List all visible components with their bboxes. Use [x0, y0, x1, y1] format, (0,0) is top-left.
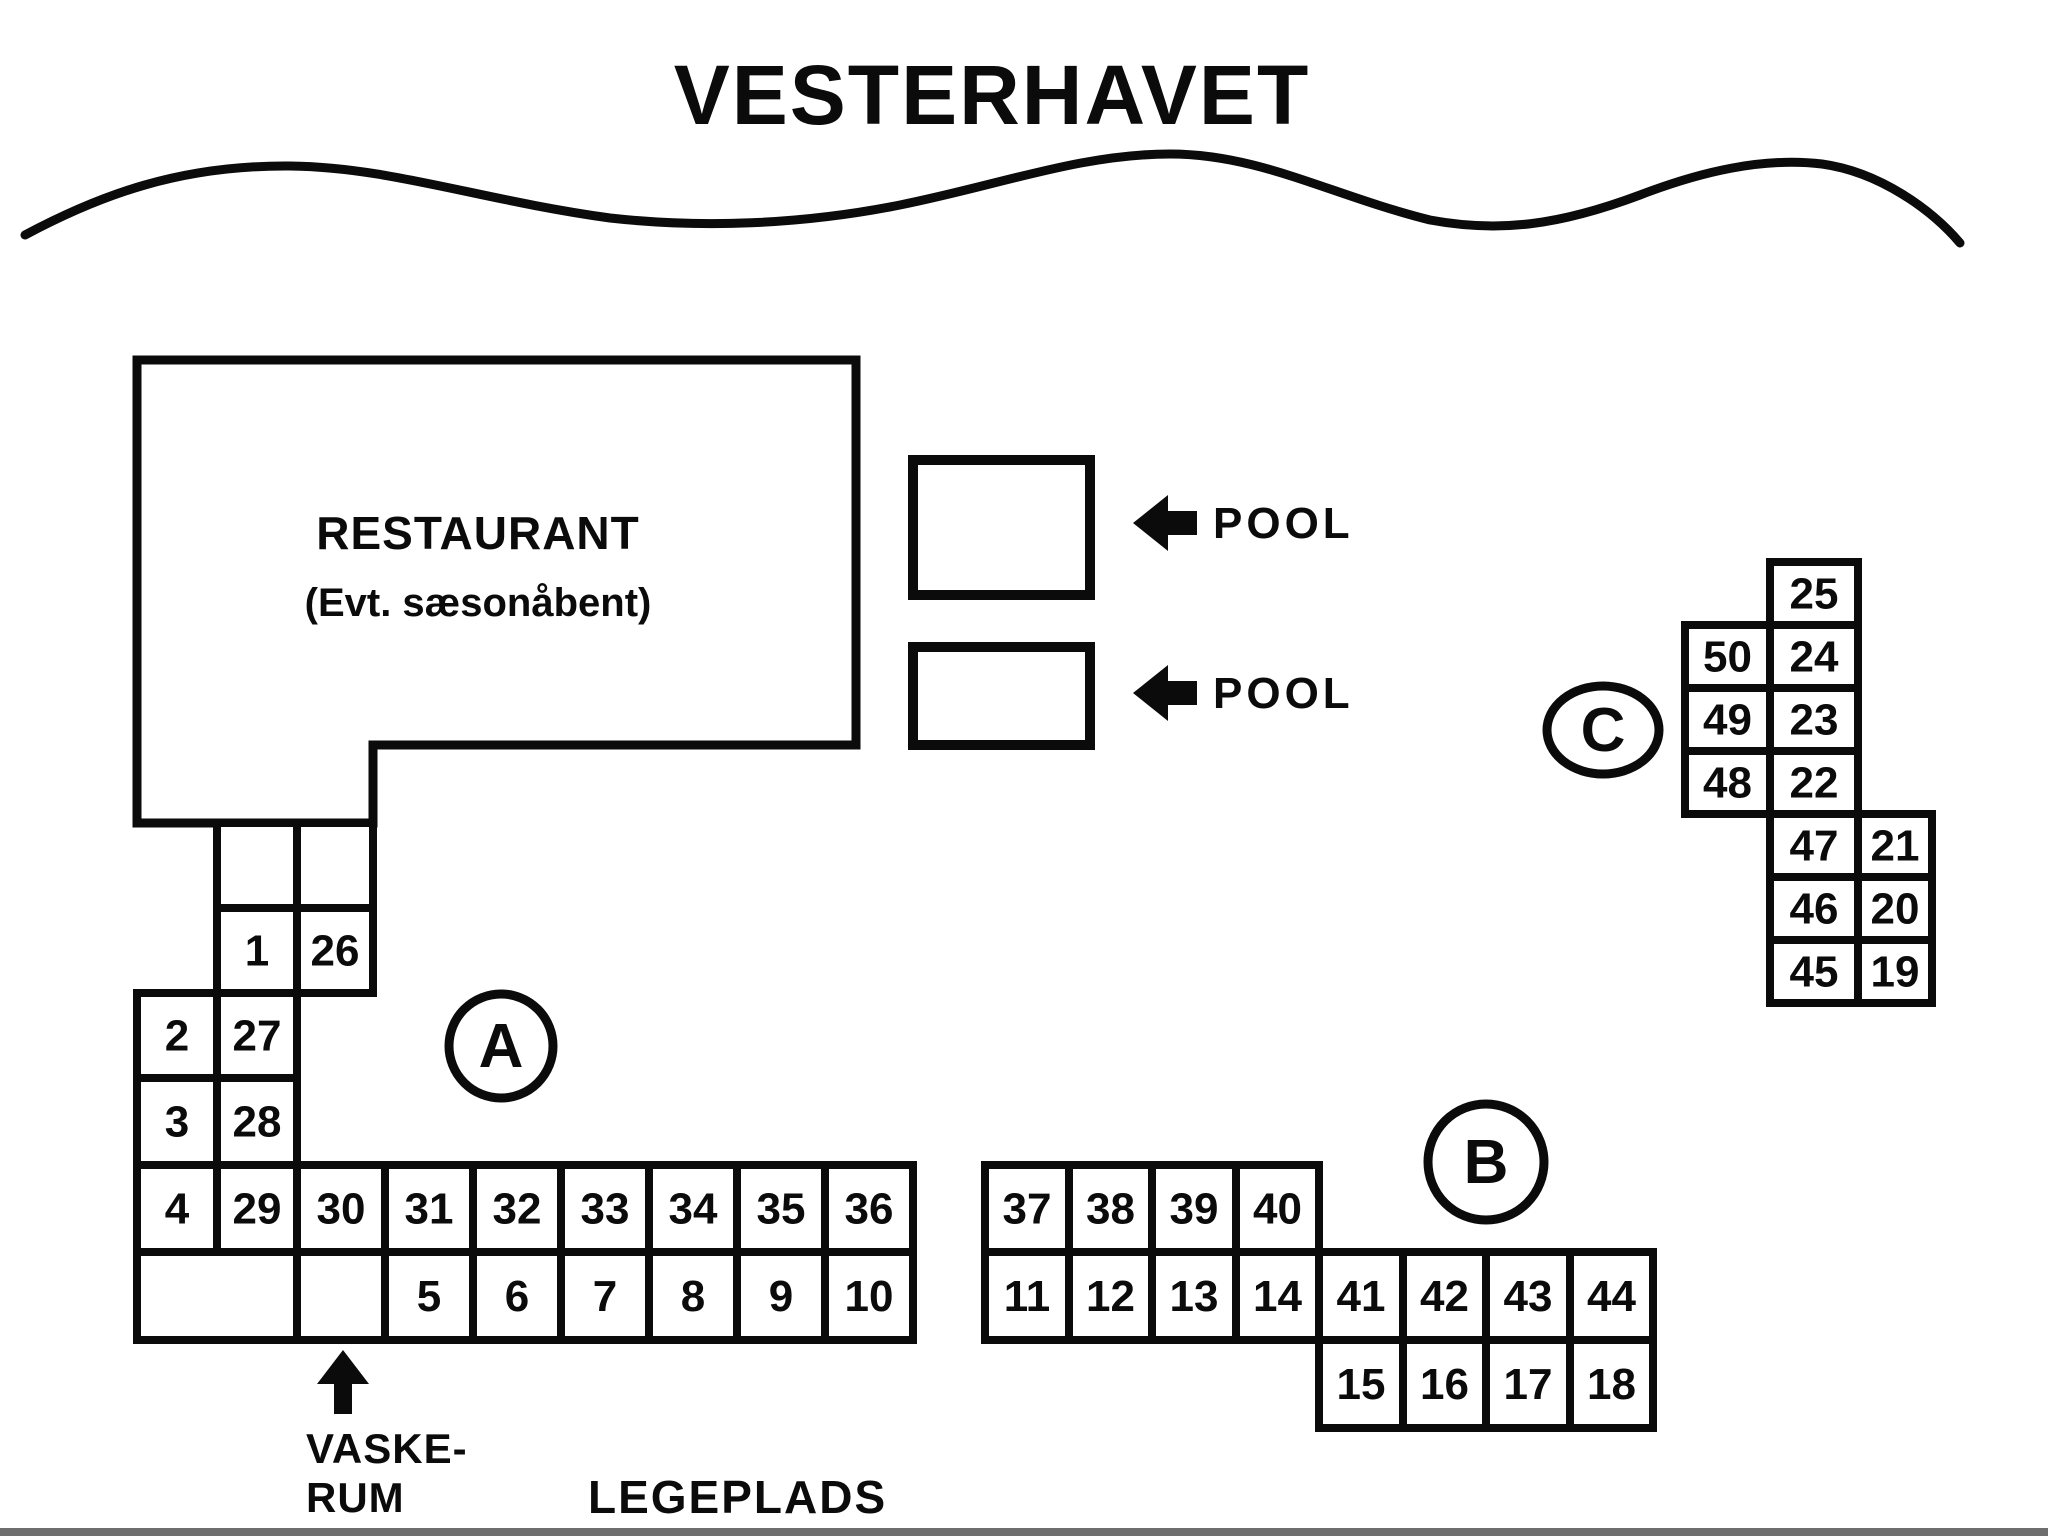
plot-cell-1: 1 [217, 908, 297, 993]
laundry-room-pointer: VASKE- RUM [306, 1350, 468, 1521]
plot-number: 9 [769, 1272, 793, 1321]
plot-number: 25 [1790, 570, 1839, 619]
plot-number: 50 [1703, 633, 1752, 682]
plot-cell-31: 31 [385, 1165, 473, 1252]
plot-cell-27: 27 [217, 993, 297, 1078]
plot-cell-41: 41 [1319, 1252, 1403, 1340]
restaurant-label: RESTAURANT [316, 507, 639, 559]
plot-cell-5: 5 [385, 1252, 473, 1340]
plot-number: 15 [1337, 1360, 1386, 1409]
plot-number: 41 [1337, 1272, 1386, 1321]
plot-cell-43: 43 [1486, 1252, 1570, 1340]
plot-number: 20 [1871, 885, 1920, 934]
section-C: 25502449234822472146204519C [1547, 562, 1932, 1003]
plot-number: 21 [1871, 822, 1920, 871]
plot-cell-47: 47 [1770, 814, 1858, 877]
plot-number: 36 [845, 1185, 894, 1234]
plot-number: 28 [233, 1098, 282, 1147]
plot-cell-46: 46 [1770, 877, 1858, 940]
plot-number: 12 [1086, 1272, 1135, 1321]
plot-number: 42 [1420, 1272, 1469, 1321]
plot-cell-36: 36 [825, 1165, 913, 1252]
section-A: 126227328429303132333435365678910A [137, 823, 913, 1340]
plot-cell-2: 2 [137, 993, 217, 1078]
plot-number: 47 [1790, 822, 1839, 871]
plot-cell-37: 37 [985, 1165, 1069, 1252]
laundry-label-line2: RUM [306, 1474, 405, 1521]
laundry-arrow-up-icon [317, 1350, 369, 1414]
plot-cell-48: 48 [1685, 751, 1770, 814]
plot-cell-28: 28 [217, 1078, 297, 1165]
site-map-page: VESTERHAVET RESTAURANT (Evt. sæsonåbent)… [0, 0, 2048, 1536]
plot-number: 29 [233, 1185, 282, 1234]
plot-number: 17 [1504, 1360, 1553, 1409]
plot-cell-12: 12 [1069, 1252, 1152, 1340]
plot-number: 37 [1003, 1185, 1052, 1234]
pool-1: POOL [913, 460, 1354, 595]
plot-cell-30: 30 [297, 1165, 385, 1252]
plot-number: 13 [1170, 1272, 1219, 1321]
plot-number: 38 [1086, 1185, 1135, 1234]
plot-cell-32: 32 [473, 1165, 561, 1252]
restaurant-note: (Evt. sæsonåbent) [305, 581, 652, 625]
plot-number: 44 [1587, 1272, 1636, 1321]
plot-number: 46 [1790, 885, 1839, 934]
plot-cell-14: 14 [1236, 1252, 1319, 1340]
plot-number: 3 [165, 1098, 189, 1147]
section-B: 37383940111213144142434415161718B [985, 1104, 1653, 1428]
pool-2-arrow-left-icon [1133, 665, 1197, 721]
plot-cell-9: 9 [737, 1252, 825, 1340]
plot-cell-45: 45 [1770, 940, 1858, 1003]
pool-2: POOL [913, 647, 1354, 745]
plot-cell-20: 20 [1858, 877, 1932, 940]
plot-number: 22 [1790, 759, 1839, 808]
plot-number: 8 [681, 1272, 705, 1321]
site-map-canvas: VESTERHAVET RESTAURANT (Evt. sæsonåbent)… [0, 0, 2048, 1536]
plot-cell-21: 21 [1858, 814, 1932, 877]
plot-cell-26: 26 [297, 908, 373, 993]
plot-cell-24: 24 [1770, 625, 1858, 688]
plot-cell-11: 11 [985, 1252, 1069, 1340]
section-C-label: C [1581, 696, 1626, 765]
plot-number: 1 [245, 927, 269, 976]
plot-cell-18: 18 [1570, 1340, 1653, 1428]
plot-cell-4: 4 [137, 1165, 217, 1252]
plot-cell-42: 42 [1403, 1252, 1486, 1340]
plot-cell-29: 29 [217, 1165, 297, 1252]
plot-number: 33 [581, 1185, 630, 1234]
plot-cell-34: 34 [649, 1165, 737, 1252]
plot-cell-outline [297, 823, 373, 908]
plot-cell-44: 44 [1570, 1252, 1653, 1340]
plot-number: 49 [1703, 696, 1752, 745]
plot-cell-6: 6 [473, 1252, 561, 1340]
plot-number: 6 [505, 1272, 529, 1321]
plot-number: 45 [1790, 948, 1839, 997]
plot-number: 18 [1587, 1360, 1636, 1409]
laundry-label-line1: VASKE- [306, 1425, 468, 1472]
plot-cell-outline [297, 1252, 385, 1340]
page-title: VESTERHAVET [674, 48, 1311, 142]
pool-1-basin [913, 460, 1090, 595]
playground-label: LEGEPLADS [588, 1471, 887, 1523]
plot-number: 24 [1790, 633, 1839, 682]
plot-cell-39: 39 [1152, 1165, 1236, 1252]
plot-number: 34 [669, 1185, 718, 1234]
plot-cell-outline [137, 1252, 297, 1340]
plot-cell-outline [217, 823, 297, 908]
plot-number: 48 [1703, 759, 1752, 808]
plot-number: 27 [233, 1012, 282, 1061]
plot-cell-22: 22 [1770, 751, 1858, 814]
plot-cell-50: 50 [1685, 625, 1770, 688]
plot-cell-16: 16 [1403, 1340, 1486, 1428]
section-B-label: B [1464, 1128, 1509, 1197]
plot-number: 32 [493, 1185, 542, 1234]
plot-number: 40 [1253, 1185, 1302, 1234]
pool-1-label: POOL [1213, 499, 1354, 548]
plot-number: 2 [165, 1012, 189, 1061]
plot-number: 35 [757, 1185, 806, 1234]
plot-cell-33: 33 [561, 1165, 649, 1252]
plot-cell-8: 8 [649, 1252, 737, 1340]
sea-wave-icon [25, 154, 1960, 243]
plot-number: 30 [317, 1185, 366, 1234]
plot-number: 26 [311, 927, 360, 976]
facility-cell [297, 823, 373, 908]
plot-cell-13: 13 [1152, 1252, 1236, 1340]
pool-2-basin [913, 647, 1090, 745]
facility-cell [137, 1252, 297, 1340]
plot-number: 43 [1504, 1272, 1553, 1321]
plot-cell-40: 40 [1236, 1165, 1319, 1252]
plot-cell-17: 17 [1486, 1340, 1570, 1428]
plot-cell-25: 25 [1770, 562, 1858, 625]
pool-1-arrow-left-icon [1133, 495, 1197, 551]
plot-number: 14 [1253, 1272, 1302, 1321]
bottom-edge-line [0, 1528, 2048, 1536]
plot-number: 39 [1170, 1185, 1219, 1234]
section-A-label: A [479, 1012, 524, 1081]
facility-cell [217, 823, 297, 908]
plot-cell-49: 49 [1685, 688, 1770, 751]
plot-cell-3: 3 [137, 1078, 217, 1165]
restaurant-building: RESTAURANT (Evt. sæsonåbent) [137, 360, 856, 823]
pool-2-label: POOL [1213, 669, 1354, 718]
plot-cell-15: 15 [1319, 1340, 1403, 1428]
plot-number: 10 [845, 1272, 894, 1321]
plot-cell-35: 35 [737, 1165, 825, 1252]
plot-number: 5 [417, 1272, 441, 1321]
plot-number: 16 [1420, 1360, 1469, 1409]
plot-cell-23: 23 [1770, 688, 1858, 751]
plot-number: 7 [593, 1272, 617, 1321]
plot-number: 11 [1004, 1272, 1051, 1321]
plot-cell-10: 10 [825, 1252, 913, 1340]
plot-number: 23 [1790, 696, 1839, 745]
plot-number: 31 [405, 1185, 454, 1234]
plot-number: 4 [165, 1185, 190, 1234]
plot-cell-38: 38 [1069, 1165, 1152, 1252]
facility-cell [297, 1252, 385, 1340]
plot-cell-7: 7 [561, 1252, 649, 1340]
plot-number: 19 [1871, 948, 1920, 997]
plot-cell-19: 19 [1858, 940, 1932, 1003]
